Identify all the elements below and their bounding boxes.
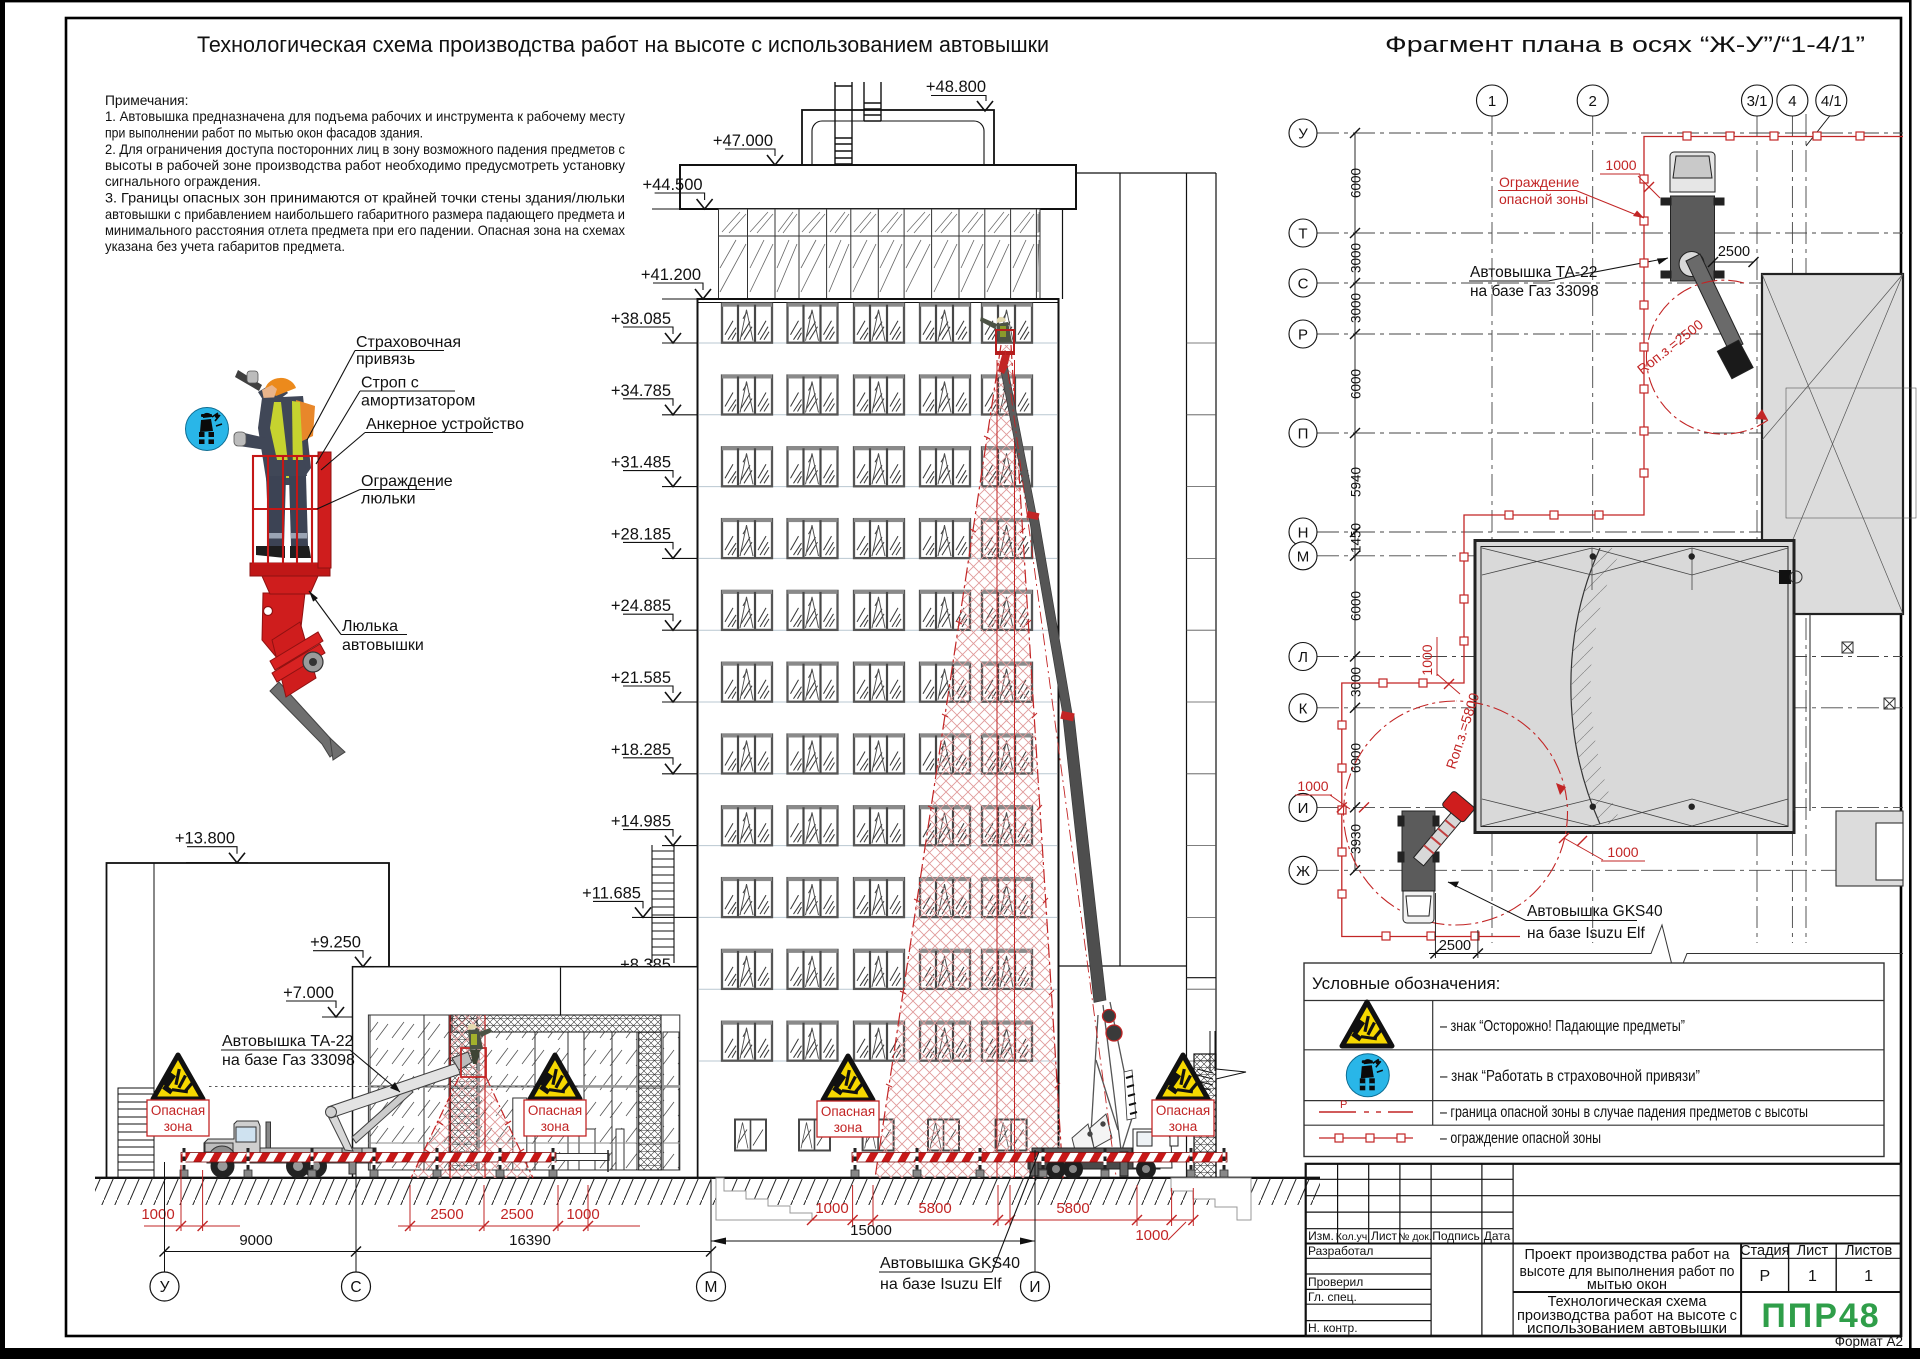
svg-text:Опасная: Опасная [821,1104,875,1119]
svg-text:1000: 1000 [1297,778,1328,794]
svg-text:1000: 1000 [141,1206,174,1223]
svg-text:9000: 9000 [239,1232,272,1249]
svg-text:Р: Р [1759,1268,1770,1285]
svg-text:+18.285: +18.285 [611,741,671,759]
svg-text:1. Автовышка предназначена дл: 1. Автовышка предназначена для подъема р… [105,109,625,124]
svg-text:мытью окон: мытью окон [1587,1277,1667,1293]
svg-text:+34.785: +34.785 [611,382,671,400]
svg-text:5940: 5940 [1349,467,1364,497]
svg-text:2. Для ограничения доступа пос: 2. Для ограничения доступа посторонних л… [105,142,625,157]
svg-text:– знак “Осторожно! Падающие пр: – знак “Осторожно! Падающие предметы” [1440,1018,1685,1035]
svg-text:Фрагмент плана в осях “Ж-У”/“1: Фрагмент плана в осях “Ж-У”/“1-4/1” [1385,32,1865,57]
svg-text:Стадия: Стадия [1740,1243,1789,1259]
svg-text:Условные обозначения:: Условные обозначения: [1312,974,1500,993]
svg-text:Гл. спец.: Гл. спец. [1308,1290,1357,1304]
svg-text:№ док.: № док. [1398,1231,1432,1243]
svg-text:15000: 15000 [850,1222,892,1239]
svg-text:– знак “Работать в страховочно: – знак “Работать в страховочной привязи” [1440,1068,1700,1085]
svg-text:5800: 5800 [918,1200,951,1217]
svg-text:Лист: Лист [1371,1229,1398,1243]
svg-text:К: К [1299,700,1308,717]
svg-text:+7.000: +7.000 [283,984,334,1002]
svg-text:на базе Isuzu Elf: на базе Isuzu Elf [1527,925,1645,942]
svg-text:И: И [1029,1279,1040,1296]
svg-text:Разработал: Разработал [1308,1244,1373,1258]
svg-text:Проверил: Проверил [1308,1275,1363,1289]
svg-text:Н: Н [1298,525,1309,542]
svg-text:использованием автовышки: использованием автовышки [1527,1321,1727,1337]
svg-text:1: 1 [1488,93,1496,110]
svg-text:+38.085: +38.085 [611,310,671,328]
svg-text:3000: 3000 [1349,667,1364,697]
svg-text:Ж: Ж [1296,863,1310,880]
svg-text:6000: 6000 [1349,369,1364,399]
svg-text:на базе Isuzu Elf: на базе Isuzu Elf [880,1276,1002,1293]
svg-text:Листов: Листов [1845,1243,1892,1259]
svg-text:У: У [1298,126,1308,143]
svg-text:Опасная: Опасная [151,1103,205,1118]
svg-text:1450: 1450 [1349,523,1364,553]
svg-text:3/1: 3/1 [1747,93,1768,110]
svg-text:16390: 16390 [509,1232,551,1249]
svg-text:+31.485: +31.485 [611,454,671,472]
svg-text:1000: 1000 [566,1206,599,1223]
svg-text:6000: 6000 [1349,168,1364,198]
svg-text:Анкерное устройство: Анкерное устройство [366,416,524,433]
svg-text:4/1: 4/1 [1821,93,1842,110]
svg-text:ППР48: ППР48 [1761,1297,1880,1335]
svg-text:С: С [350,1279,361,1296]
svg-text:У: У [160,1279,170,1296]
svg-text:Технологическая схема производ: Технологическая схема производства работ… [197,32,1049,57]
svg-text:И: И [1298,800,1309,817]
svg-text:2: 2 [1589,93,1597,110]
svg-text:высоты в рабочей зоне производ: высоты в рабочей зоне производства работ… [105,158,625,173]
svg-text:+41.200: +41.200 [641,266,701,284]
svg-text:1000: 1000 [1135,1227,1168,1244]
svg-text:6000: 6000 [1349,591,1364,621]
svg-text:привязь: привязь [356,351,415,368]
svg-text:Люлька: Люлька [342,618,398,635]
svg-text:1000: 1000 [1605,157,1636,173]
svg-text:на базе Газ 33098: на базе Газ 33098 [222,1052,355,1069]
svg-text:М: М [705,1279,718,1296]
svg-text:автовышки: автовышки [342,637,424,654]
svg-text:3000: 3000 [1349,243,1364,273]
svg-text:1: 1 [1808,1268,1817,1285]
svg-text:Ограждение: Ограждение [361,473,453,490]
svg-text:при выполнении работ по мытью: при выполнении работ по мытью окон фасад… [105,126,423,141]
svg-text:3. Границы опасных зон принима: 3. Границы опасных зон принимаются от кр… [105,191,625,206]
svg-text:+24.885: +24.885 [611,597,671,615]
svg-text:2500: 2500 [1718,244,1750,260]
svg-text:зона: зона [164,1119,193,1134]
svg-text:Проект производства работ на: Проект производства работ на [1525,1247,1731,1263]
svg-text:5800: 5800 [1056,1200,1089,1217]
svg-text:Подпись: Подпись [1432,1229,1480,1243]
svg-text:Автовышка GKS40: Автовышка GKS40 [880,1255,1020,1272]
svg-text:Опасная: Опасная [1156,1103,1210,1118]
svg-text:1000: 1000 [1607,844,1638,860]
svg-text:люльки: люльки [361,491,416,508]
svg-text:– граница опасной зоны в случа: – граница опасной зоны в случае падения … [1440,1104,1808,1121]
svg-text:– ограждение опасной зоны: – ограждение опасной зоны [1440,1130,1601,1147]
svg-text:Т: Т [1298,226,1307,243]
svg-text:3930: 3930 [1349,824,1364,854]
svg-text:Изм.: Изм. [1308,1229,1334,1243]
svg-text:на базе Газ 33098: на базе Газ 33098 [1470,283,1599,300]
svg-text:Н. контр.: Н. контр. [1308,1321,1358,1335]
svg-text:1000: 1000 [1419,644,1435,675]
svg-text:+21.585: +21.585 [611,669,671,687]
svg-text:Автовышка GKS40: Автовышка GKS40 [1527,903,1663,920]
svg-text:С: С [1298,276,1309,293]
svg-text:автовышки с прибавлением наибо: автовышки с прибавлением наибольшего габ… [105,207,625,222]
svg-text:зона: зона [834,1120,863,1135]
svg-text:Р: Р [1340,1099,1347,1111]
svg-text:+13.800: +13.800 [175,830,235,848]
svg-text:+47.000: +47.000 [713,132,773,150]
svg-text:+28.185: +28.185 [611,525,671,543]
svg-text:П: П [1298,426,1309,443]
svg-text:+48.800: +48.800 [926,78,986,96]
svg-text:Автовышка ТА-22: Автовышка ТА-22 [1470,264,1597,281]
svg-text:Л: Л [1298,649,1308,666]
svg-text:+44.500: +44.500 [642,176,702,194]
svg-text:зона: зона [541,1119,570,1134]
svg-text:+11.685: +11.685 [582,884,641,902]
svg-text:Формат А2: Формат А2 [1835,1334,1903,1349]
svg-text:Строп с: Строп с [361,375,419,392]
svg-text:1000: 1000 [815,1200,848,1217]
svg-text:3000: 3000 [1349,293,1364,323]
svg-text:Автовышка ТА-22: Автовышка ТА-22 [222,1033,354,1050]
svg-text:Дата: Дата [1484,1229,1511,1243]
svg-text:сигнального ограждения.: сигнального ограждения. [105,174,261,189]
svg-text:4: 4 [1788,93,1796,110]
svg-text:зона: зона [1169,1119,1198,1134]
svg-text:2500: 2500 [1439,938,1471,954]
svg-text:минимального расстояния отлета: минимального расстояния отлета предмета … [105,223,625,238]
svg-text:+9.250: +9.250 [310,934,361,952]
svg-text:Р: Р [1298,327,1308,344]
svg-text:1: 1 [1864,1268,1873,1285]
svg-text:Опасная: Опасная [528,1103,582,1118]
svg-text:2500: 2500 [500,1206,533,1223]
svg-text:+14.985: +14.985 [611,813,671,831]
svg-text:2500: 2500 [430,1206,463,1223]
svg-text:опасной зоны: опасной зоны [1499,191,1588,207]
svg-text:Кол.уч.: Кол.уч. [1336,1231,1370,1243]
svg-text:указана без учета габаритов пр: указана без учета габаритов предмета. [105,239,345,254]
svg-text:Ограждение: Ограждение [1499,174,1579,190]
svg-text:амортизатором: амортизатором [361,393,475,410]
svg-text:Страховочная: Страховочная [356,334,461,351]
svg-text:М: М [1297,548,1310,565]
svg-text:6000: 6000 [1349,743,1364,773]
svg-text:Лист: Лист [1797,1243,1829,1259]
svg-text:Примечания:: Примечания: [105,93,189,108]
